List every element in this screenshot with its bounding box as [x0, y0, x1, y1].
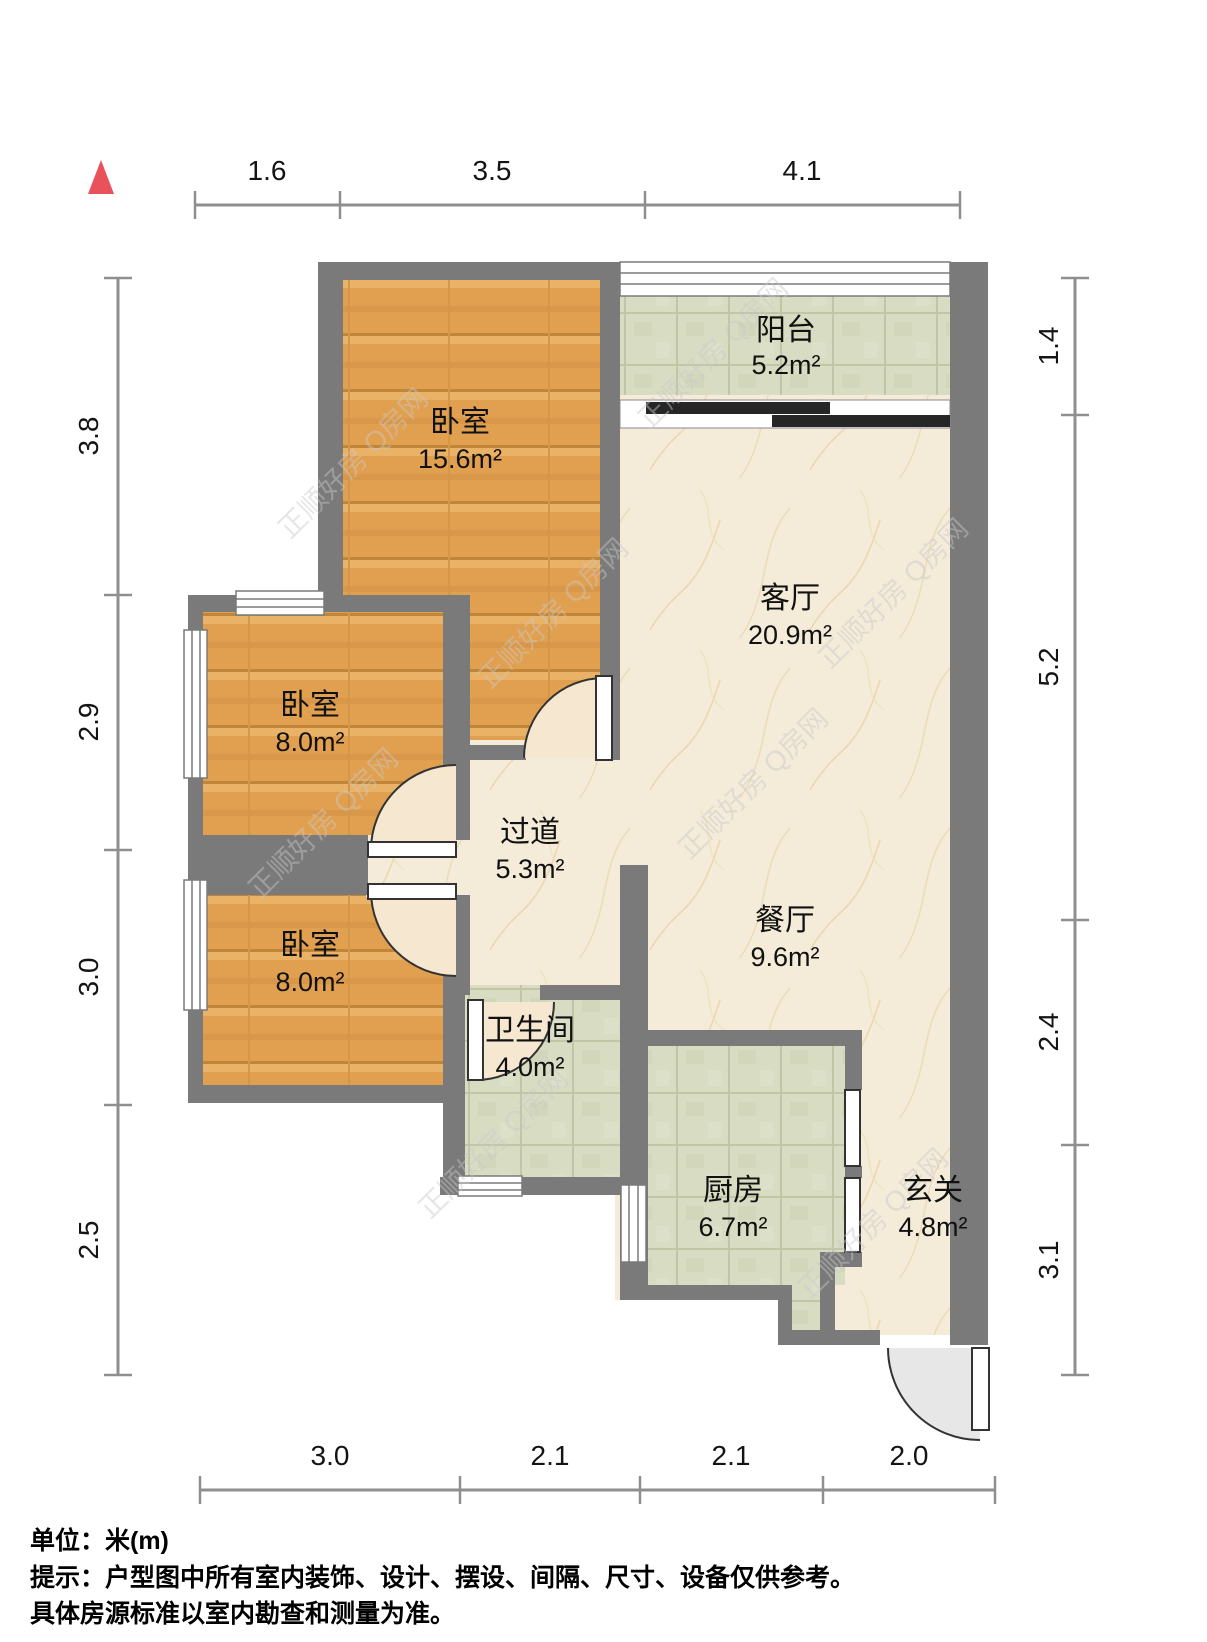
floorplan-canvas: 正顺好房 Q房网 正顺好房 Q房网 正顺好房 Q房网 正顺好房 Q房网 正顺好房…	[0, 0, 1207, 1642]
door-entry	[888, 1348, 989, 1440]
dimension-top: 1.6 3.5 4.1	[195, 155, 960, 219]
dim-top-1: 1.6	[248, 155, 287, 186]
disclaimer-line2: 具体房源标准以室内勘查和测量为准。	[30, 1599, 455, 1628]
dim-bottom-1: 3.0	[311, 1440, 350, 1471]
dim-left-1: 3.8	[73, 417, 104, 456]
bathroom-label: 卫生间	[485, 1014, 575, 1047]
wall-kitchen-right-mid	[845, 1166, 862, 1178]
outside-mask	[610, 1300, 778, 1390]
bedroom-bottom-label: 卧室	[280, 929, 340, 962]
dimension-bottom: 3.0 2.1 2.1 2.0	[200, 1440, 995, 1504]
entry-label: 玄关	[903, 1174, 963, 1207]
dim-left-2: 2.9	[73, 703, 104, 742]
bedroom-bottom-left-window	[184, 880, 207, 1010]
dim-left-4: 2.5	[73, 1221, 104, 1260]
balcony-label: 阳台	[756, 314, 816, 347]
floorplan-page: 正顺好房 Q房网 正顺好房 Q房网 正顺好房 Q房网 正顺好房 Q房网 正顺好房…	[0, 0, 1207, 1642]
wall-step-vert	[778, 1300, 792, 1345]
unit-note: 单位：米(m)	[30, 1526, 169, 1555]
entry-area: 4.8m²	[898, 1212, 967, 1242]
bedroom-mid-area: 8.0m²	[275, 727, 344, 757]
dimension-left: 3.8 2.9 3.0 2.5	[73, 278, 132, 1375]
kitchen-floor	[648, 1046, 845, 1285]
kitchen-area: 6.7m²	[698, 1212, 767, 1242]
dim-right-3: 2.4	[1033, 1013, 1064, 1052]
bedroom-bottom-area: 8.0m²	[275, 967, 344, 997]
living-area: 20.9m²	[748, 620, 832, 650]
hallway-label: 过道	[500, 816, 560, 849]
dim-bottom-2: 2.1	[531, 1440, 570, 1471]
dim-right-1: 1.4	[1033, 327, 1064, 366]
kitchen-label: 厨房	[703, 1174, 763, 1207]
bedroom-mid-top-window	[236, 591, 324, 615]
dim-bottom-4: 2.0	[890, 1440, 929, 1471]
bedroom-top-area: 15.6m²	[418, 444, 502, 474]
dim-right-2: 5.2	[1033, 648, 1064, 687]
wall-kitchen-top	[648, 1030, 862, 1046]
hallway-area: 5.3m²	[495, 854, 564, 884]
wall-kitchen-bottom	[620, 1285, 792, 1300]
dim-right-4: 3.1	[1033, 1241, 1064, 1280]
wall-bedroom-mid-top	[188, 595, 470, 612]
dim-top-3: 4.1	[783, 155, 822, 186]
bedroom-top-label: 卧室	[430, 406, 490, 439]
footer-notes: 单位：米(m) 提示：户型图中所有室内装饰、设计、摆设、间隔、尺寸、设备仅供参考…	[30, 1526, 855, 1628]
dim-left-3: 3.0	[73, 958, 104, 997]
wall-top-bedroom	[318, 262, 620, 280]
dining-area: 9.6m²	[750, 942, 819, 972]
dining-label: 餐厅	[755, 904, 815, 937]
wall-bathroom-top	[540, 985, 620, 1000]
wall-bedroom-top-bottom	[450, 745, 526, 760]
dim-bottom-3: 2.1	[712, 1440, 751, 1471]
bedroom-mid-left-window	[184, 630, 207, 778]
balcony-area: 5.2m²	[751, 350, 820, 380]
bedroom-mid-label: 卧室	[280, 689, 340, 722]
living-label: 客厅	[760, 582, 820, 615]
dimension-right: 1.4 5.2 2.4 3.1	[1033, 278, 1089, 1375]
kitchen-left-window	[621, 1185, 646, 1262]
wall-bedroom-top-left	[318, 262, 343, 612]
wall-bottom-entry	[792, 1330, 880, 1345]
disclaimer-line1: 提示：户型图中所有室内装饰、设计、摆设、间隔、尺寸、设备仅供参考。	[30, 1563, 855, 1592]
wall-bedroom-bottom-bottom	[188, 1085, 458, 1103]
north-indicator-icon	[88, 160, 114, 194]
bathroom-area: 4.0m²	[495, 1052, 564, 1082]
dim-top-2: 3.5	[473, 155, 512, 186]
wall-kitchen-right-upper	[845, 1030, 862, 1090]
